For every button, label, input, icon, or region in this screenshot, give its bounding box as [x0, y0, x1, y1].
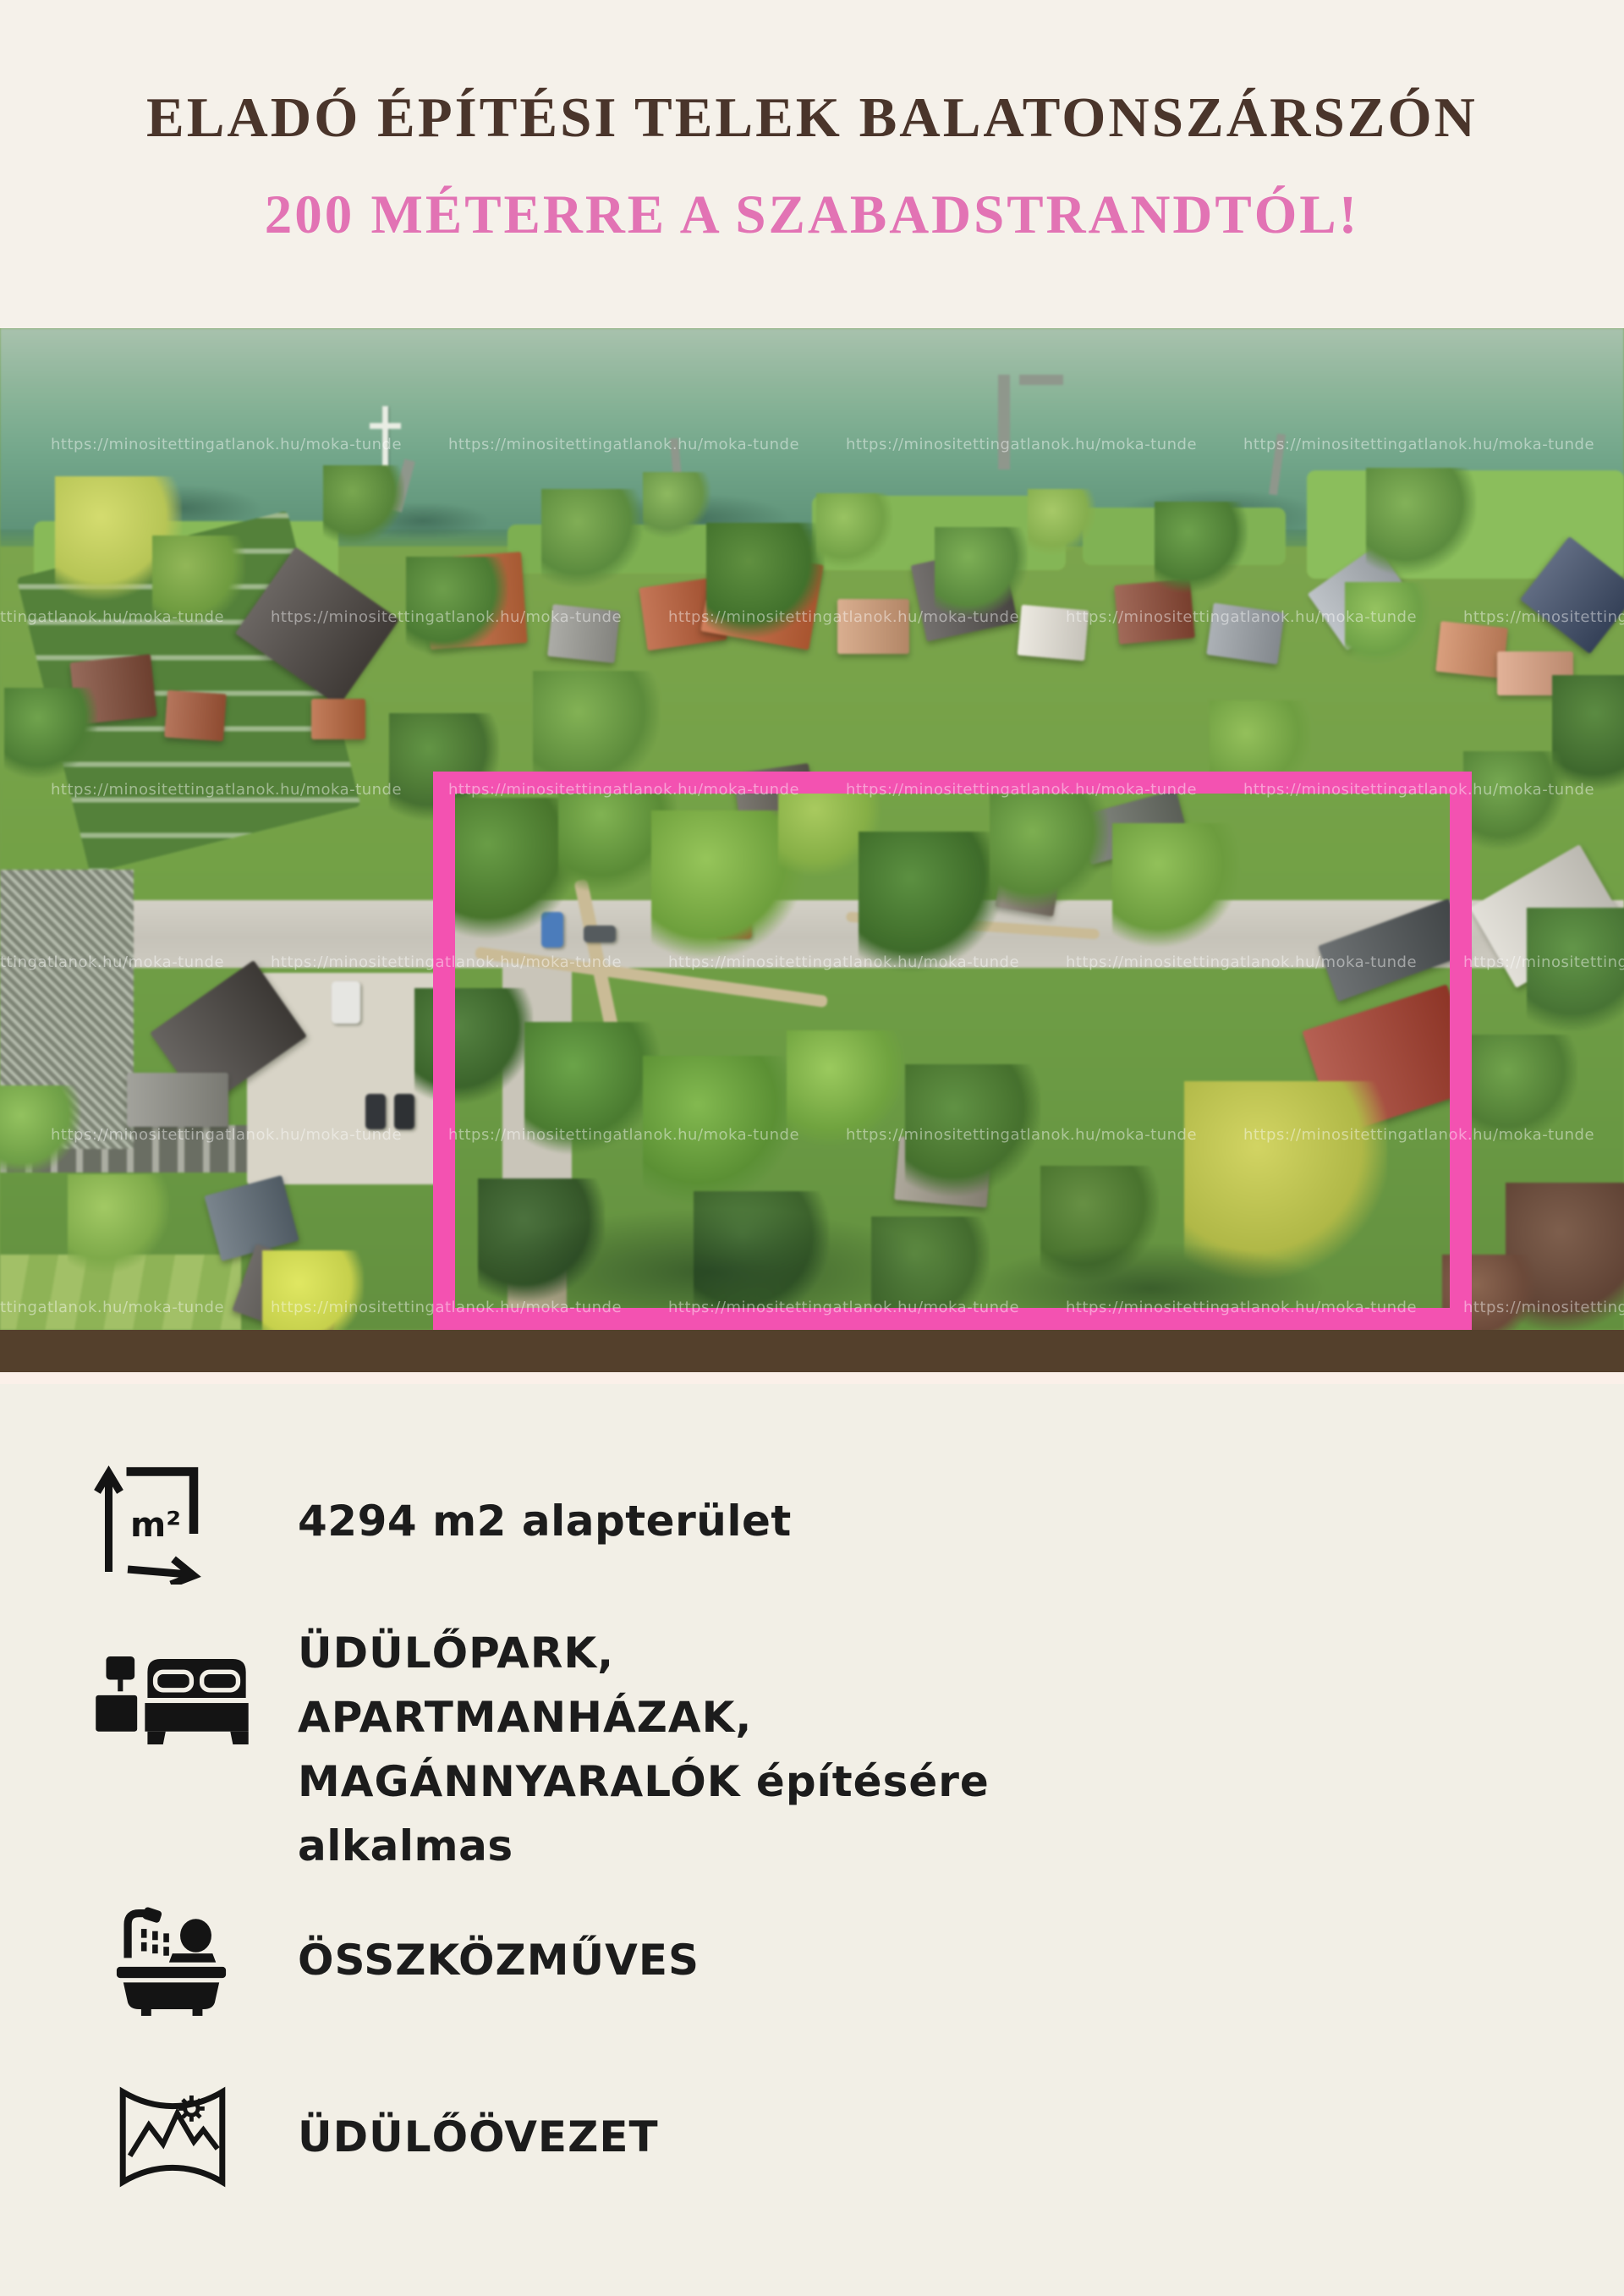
- feature-usage-line-1: ÜDÜLŐPARK,: [298, 1621, 990, 1685]
- watermark-text: https://minositettingatlanok.hu/moka-tun…: [1243, 1126, 1594, 1144]
- page-title: ELADÓ ÉPÍTÉSI TELEK BALATONSZÁRSZÓN: [0, 90, 1624, 146]
- scenery-shape: [164, 690, 227, 742]
- feature-usage-line-4: alkalmas: [298, 1814, 990, 1878]
- watermark-text: https://minositettingatlanok.hu/moka-tun…: [448, 781, 799, 799]
- aerial-photo: https://minositettingatlanok.hu/moka-tun…: [0, 328, 1624, 1330]
- scenery-shape: [4, 688, 97, 781]
- watermark-text: https://minositettingatlanok.hu/moka-tun…: [0, 1299, 224, 1316]
- watermark-text: https://minositettingatlanok.hu/moka-tun…: [271, 1299, 622, 1316]
- map-landscape-icon: [113, 2074, 232, 2200]
- header: ELADÓ ÉPÍTÉSI TELEK BALATONSZÁRSZÓN 200 …: [0, 0, 1624, 328]
- scenery-shape: [311, 699, 365, 739]
- scenery-shape: [1019, 375, 1063, 385]
- subtitle: 200 MÉTERRE A SZABADSTRANDTÓL!: [0, 188, 1624, 243]
- real-estate-flyer: ELADÓ ÉPÍTÉSI TELEK BALATONSZÁRSZÓN 200 …: [0, 0, 1624, 2296]
- watermark-text: https://minositettingatlanok.hu/moka-tun…: [846, 781, 1197, 799]
- watermark-text: https://minositettingatlanok.hu/moka-tun…: [0, 608, 224, 626]
- watermark-text: https://minositettingatlanok.hu/moka-tun…: [846, 1126, 1197, 1144]
- watermark-text: https://minositettingatlanok.hu/moka-tun…: [448, 1126, 799, 1144]
- scenery-shape: [394, 1094, 414, 1129]
- light-divider-strip: [0, 1372, 1624, 1384]
- plot-outline-rectangle: [433, 772, 1472, 1330]
- scenery-shape: [1155, 502, 1248, 595]
- watermark-text: https://minositettingatlanok.hu/moka-tun…: [1243, 436, 1594, 453]
- watermark-text: https://minositettingatlanok.hu/moka-tun…: [51, 1126, 402, 1144]
- svg-text:m²: m²: [130, 1504, 181, 1545]
- brown-divider-band: [0, 1330, 1624, 1372]
- watermark-text: https://minositettingatlanok.hu/moka-tun…: [1066, 1299, 1417, 1316]
- watermark-text: https://minositettingatlanok.hu/moka-tun…: [1066, 953, 1417, 971]
- scenery-shape: [406, 557, 507, 658]
- bathtub-shower-icon: [110, 1898, 233, 2023]
- scenery-shape: [68, 1174, 169, 1276]
- watermark-text: https://minositettingatlanok.hu/moka-tun…: [668, 953, 1019, 971]
- watermark-text: https://minositettingatlanok.hu/moka-tun…: [271, 953, 622, 971]
- scenery-shape: [1463, 751, 1565, 853]
- watermark-text: https://minositettingatlanok.hu/moka-tun…: [51, 781, 402, 799]
- scenery-shape: [262, 1250, 364, 1330]
- scenery-shape: [1366, 468, 1476, 578]
- scenery-shape: [1028, 489, 1095, 557]
- bed-icon: [95, 1656, 252, 1744]
- watermark-text: https://minositettingatlanok.hu/moka-tun…: [668, 608, 1019, 626]
- feature-usage-line-2: APARTMANHÁZAK,: [298, 1685, 990, 1749]
- area-measure-icon: m²: [88, 1458, 223, 1585]
- scenery-shape: [935, 527, 1028, 620]
- watermark-text: https://minositettingatlanok.hu/moka-tun…: [448, 436, 799, 453]
- watermark-text: https://minositettingatlanok.hu/moka-tun…: [1066, 608, 1417, 626]
- watermark-text: https://minositettingatlanok.hu/moka-tun…: [271, 608, 622, 626]
- scenery-shape: [837, 599, 909, 654]
- feature-zone-label: ÜDÜLŐÖVEZET: [298, 2074, 659, 2200]
- scenery-shape: [370, 423, 401, 429]
- feature-usage-line-3: MAGÁNNYARALÓK építésére: [298, 1749, 990, 1814]
- scenery-shape: [127, 1073, 228, 1127]
- watermark-text: https://minositettingatlanok.hu/moka-tun…: [1463, 1299, 1624, 1316]
- scenery-shape: [816, 493, 892, 569]
- scenery-shape: [643, 472, 710, 540]
- watermark-text: https://minositettingatlanok.hu/moka-tun…: [1463, 608, 1624, 626]
- watermark-text: https://minositettingatlanok.hu/moka-tun…: [846, 436, 1197, 453]
- feature-area-label: 4294 m2 alapterület: [298, 1458, 792, 1585]
- watermark-text: https://minositettingatlanok.hu/moka-tun…: [1243, 781, 1594, 799]
- scenery-shape: [323, 465, 404, 547]
- watermark-text: https://minositettingatlanok.hu/moka-tun…: [1463, 953, 1624, 971]
- watermark-text: https://minositettingatlanok.hu/moka-tun…: [51, 436, 402, 453]
- watermark-text: https://minositettingatlanok.hu/moka-tun…: [0, 953, 224, 971]
- scenery-shape: [998, 375, 1010, 470]
- watermark-text: https://minositettingatlanok.hu/moka-tun…: [668, 1299, 1019, 1316]
- feature-usage-label: ÜDÜLŐPARK, APARTMANHÁZAK, MAGÁNNYARALÓK …: [298, 1621, 990, 1878]
- scenery-shape: [1527, 908, 1624, 1035]
- scenery-shape: [541, 489, 643, 590]
- feature-utilities-label: ÖSSZKÖZMŰVES: [298, 1898, 700, 2023]
- scenery-shape: [332, 981, 360, 1024]
- scenery-shape: [365, 1094, 386, 1129]
